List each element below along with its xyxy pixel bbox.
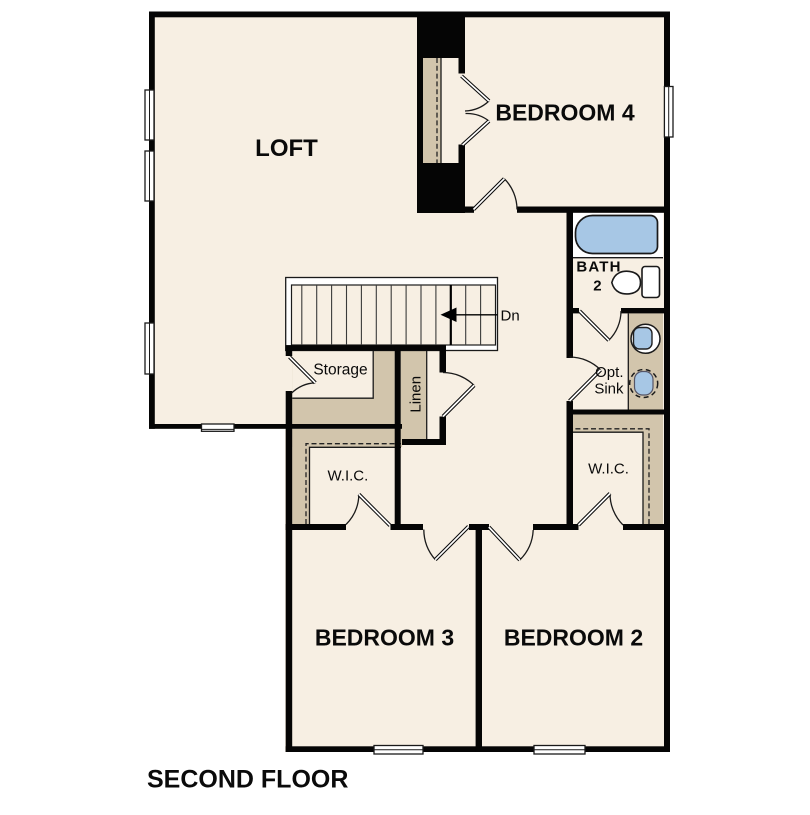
svg-text:W.I.C.: W.I.C. xyxy=(327,468,368,485)
svg-text:LOFT: LOFT xyxy=(255,135,318,162)
svg-text:BEDROOM 2: BEDROOM 2 xyxy=(504,625,643,651)
svg-text:Opt.: Opt. xyxy=(595,364,623,381)
svg-text:Storage: Storage xyxy=(313,361,367,378)
svg-text:2: 2 xyxy=(593,278,603,295)
svg-text:SECOND FLOOR: SECOND FLOOR xyxy=(147,766,348,794)
svg-text:W.I.C.: W.I.C. xyxy=(588,461,629,478)
svg-text:BATH: BATH xyxy=(576,259,621,276)
svg-text:Linen: Linen xyxy=(408,376,425,413)
svg-text:BEDROOM 4: BEDROOM 4 xyxy=(495,100,635,126)
svg-text:BEDROOM 3: BEDROOM 3 xyxy=(315,625,454,651)
svg-text:Sink: Sink xyxy=(594,381,624,398)
svg-text:Dn: Dn xyxy=(501,308,520,325)
